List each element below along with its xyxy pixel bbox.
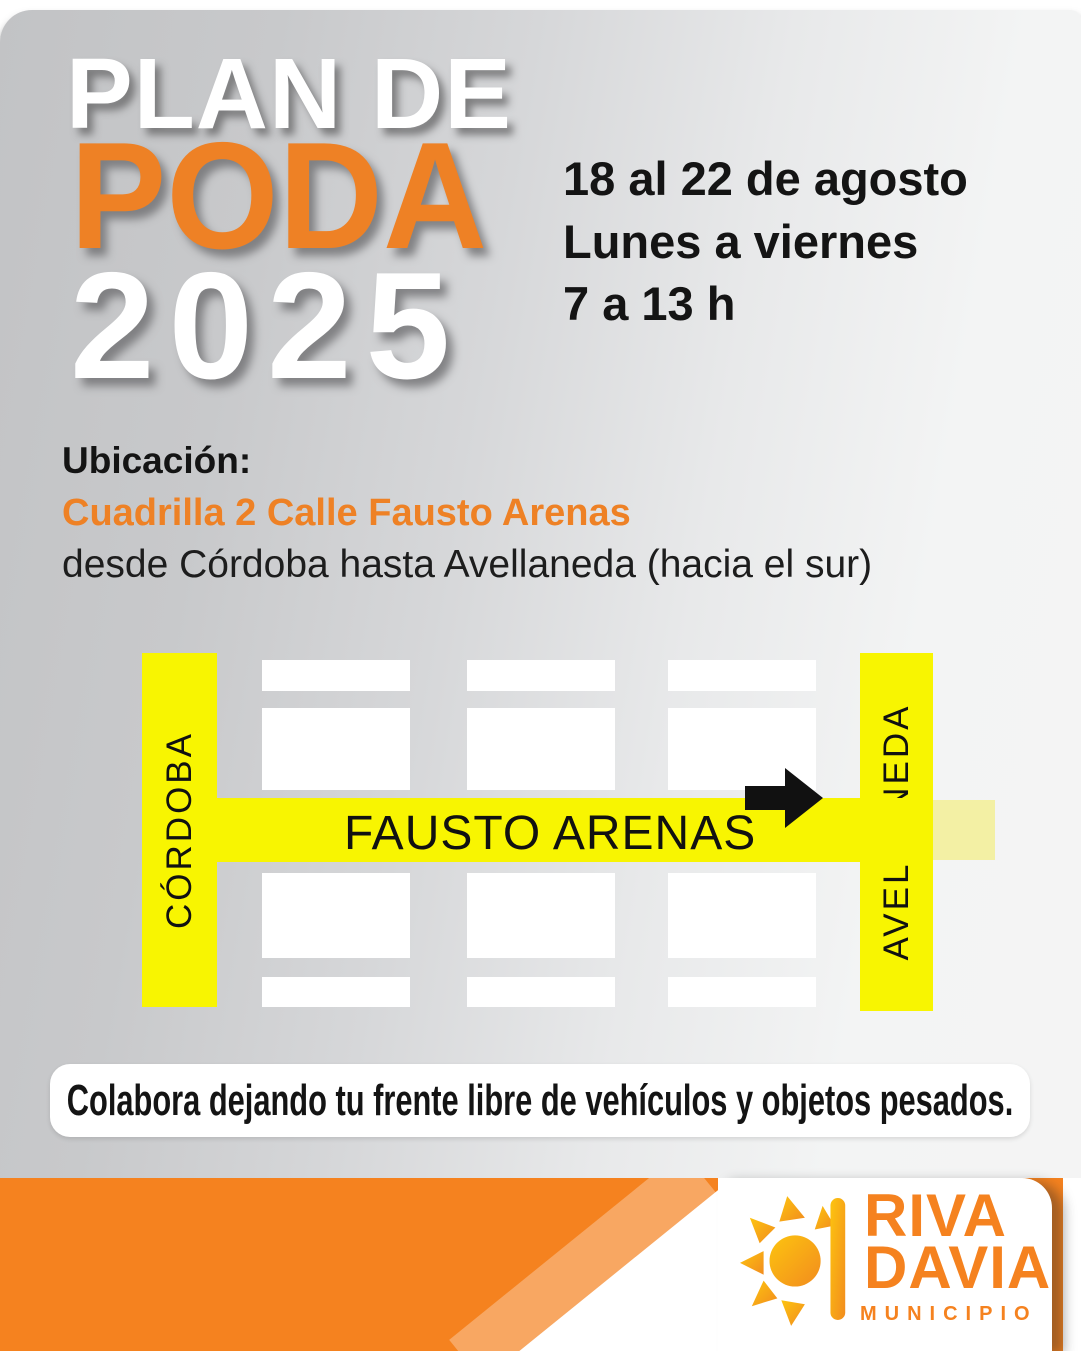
sun-icon (740, 1190, 858, 1328)
street-fausto-arenas: FAUSTO ARENAS (216, 798, 933, 862)
city-block (668, 977, 816, 1007)
location-detail: desde Córdoba hasta Avellaneda (hacia el… (62, 543, 872, 587)
location-crew: Cuadrilla 2 Calle Fausto Arenas (62, 492, 872, 535)
schedule-hours: 7 a 13 h (563, 273, 968, 336)
schedule-block: 18 al 22 de agosto Lunes a viernes 7 a 1… (563, 148, 968, 336)
cooperation-banner-text: Colabora dejando tu frente libre de vehí… (67, 1076, 1013, 1126)
city-block (467, 708, 615, 790)
city-block (467, 977, 615, 1007)
cooperation-banner: Colabora dejando tu frente libre de vehí… (50, 1064, 1030, 1137)
city-block (668, 873, 816, 958)
street-cordoba: CÓRDOBA (142, 653, 217, 1007)
city-block (467, 660, 615, 691)
footer: RIVA DAVIA MUNICIPIO (0, 1178, 1081, 1351)
city-block (262, 977, 410, 1007)
city-block (467, 873, 615, 958)
logo-line2: DAVIA (864, 1242, 1051, 1294)
title-2025: 2025 (70, 250, 464, 402)
city-block (262, 708, 410, 790)
right-arrow-icon (745, 766, 823, 830)
location-label: Ubicación: (62, 440, 872, 482)
location-block: Ubicación: Cuadrilla 2 Calle Fausto Aren… (62, 440, 872, 587)
schedule-dates: 18 al 22 de agosto (563, 148, 968, 211)
city-block (262, 660, 410, 691)
street-cordoba-label: CÓRDOBA (160, 731, 200, 929)
municipality-logo: RIVA DAVIA MUNICIPIO (740, 1190, 1051, 1328)
street-fausto-arenas-label: FAUSTO ARENAS (344, 806, 756, 861)
city-block (262, 873, 410, 958)
street-continuation (933, 800, 995, 860)
logo-municipio: MUNICIPIO (860, 1303, 1051, 1326)
logo-text: RIVA DAVIA (864, 1190, 1051, 1293)
logo-panel: RIVA DAVIA MUNICIPIO (718, 1178, 1052, 1351)
city-block (668, 660, 816, 691)
schedule-days: Lunes a viernes (563, 211, 968, 274)
